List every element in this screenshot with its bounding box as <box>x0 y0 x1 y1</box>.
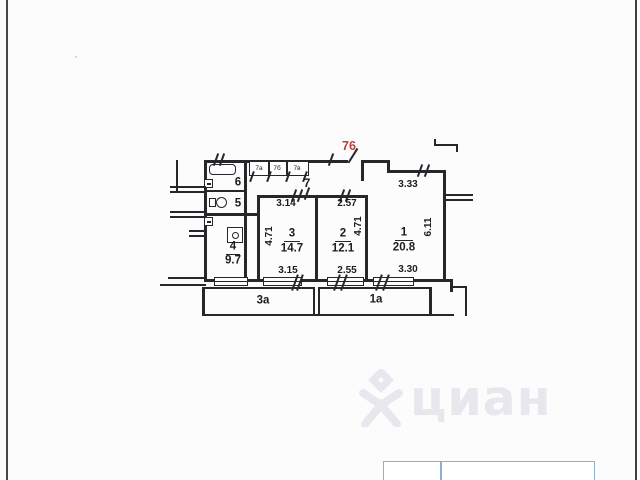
wall-stub <box>160 284 206 286</box>
room-5-number: 5 <box>235 198 241 210</box>
room-1-area: 20.8 <box>393 242 415 254</box>
wall-stub <box>176 160 178 192</box>
dim-room2-bottom: 2.55 <box>337 266 356 276</box>
dim-room3-bottom: 3.15 <box>278 266 297 276</box>
balcony-rail <box>313 287 315 315</box>
wall-stub <box>465 286 467 316</box>
room-4-number: 4 <box>230 241 236 253</box>
watermark-text: циан <box>410 374 552 423</box>
vent-shaft-icon <box>207 183 211 185</box>
room-2-number: 2 <box>340 228 346 240</box>
stove-icon <box>232 232 239 239</box>
dimension-tick <box>189 230 204 232</box>
balcony-rail <box>202 287 314 289</box>
wall-stub <box>443 199 473 201</box>
wall <box>365 195 368 281</box>
closet-a-label: 7а <box>255 166 262 173</box>
wall <box>244 214 247 281</box>
cian-watermark: циан <box>358 366 558 430</box>
dim-room1-right: 6.11 <box>424 218 434 237</box>
toilet-icon <box>216 197 227 208</box>
balcony-rail <box>202 287 205 316</box>
room-7-number: 7 <box>304 177 311 189</box>
wall-stub <box>434 144 458 146</box>
wall <box>244 160 247 216</box>
apartment-number: 76 <box>342 139 356 153</box>
wall-stub <box>443 194 473 196</box>
balcony-rail <box>319 287 431 289</box>
wall <box>257 195 260 281</box>
balcony-right-label: 1а <box>370 294 383 306</box>
wall <box>443 170 446 281</box>
dim-room2-right: 4.71 <box>354 216 364 235</box>
scan-speck <box>75 56 77 58</box>
dim-room2-top: 2.57 <box>337 199 356 209</box>
wall <box>387 170 446 173</box>
room-3-number: 3 <box>289 228 295 240</box>
wall <box>206 190 244 192</box>
scan-edge-right <box>635 0 637 480</box>
wall-stub <box>456 144 458 152</box>
dim-room1-top: 3.33 <box>398 180 417 190</box>
wall <box>206 213 260 216</box>
wall-stub <box>168 277 206 279</box>
footer-table <box>383 461 595 480</box>
vent-shaft-icon <box>207 221 211 223</box>
wall <box>315 195 318 281</box>
room-6-number: 6 <box>235 177 241 189</box>
wall-stub <box>170 211 206 213</box>
room-3-area: 14.7 <box>281 243 303 255</box>
room-4-area: 9.7 <box>225 255 241 267</box>
dimension-tick <box>189 235 204 237</box>
wall-stub <box>170 216 206 218</box>
balcony-rail <box>318 287 320 315</box>
scan-edge-left <box>6 0 8 480</box>
cian-logo-icon <box>358 369 404 427</box>
room-1-number: 1 <box>401 227 407 239</box>
room-2-area: 12.1 <box>332 243 354 255</box>
dim-room3-top: 3.14 <box>276 199 295 209</box>
scanned-floor-plan-page: циан 76 7а 7б 7в <box>0 0 640 480</box>
window <box>214 277 248 286</box>
dim-room3-left: 4.71 <box>265 226 275 245</box>
balcony-left-label: 3а <box>257 295 270 307</box>
balcony-rail <box>429 287 432 316</box>
footer-table-divider <box>440 462 442 480</box>
balcony-rail <box>202 314 454 316</box>
closet-c-label: 7в <box>293 166 300 173</box>
toilet-icon <box>209 198 216 207</box>
closet-b-label: 7б <box>273 166 280 173</box>
dim-room1-bottom: 3.30 <box>398 265 417 275</box>
wall <box>361 160 364 181</box>
